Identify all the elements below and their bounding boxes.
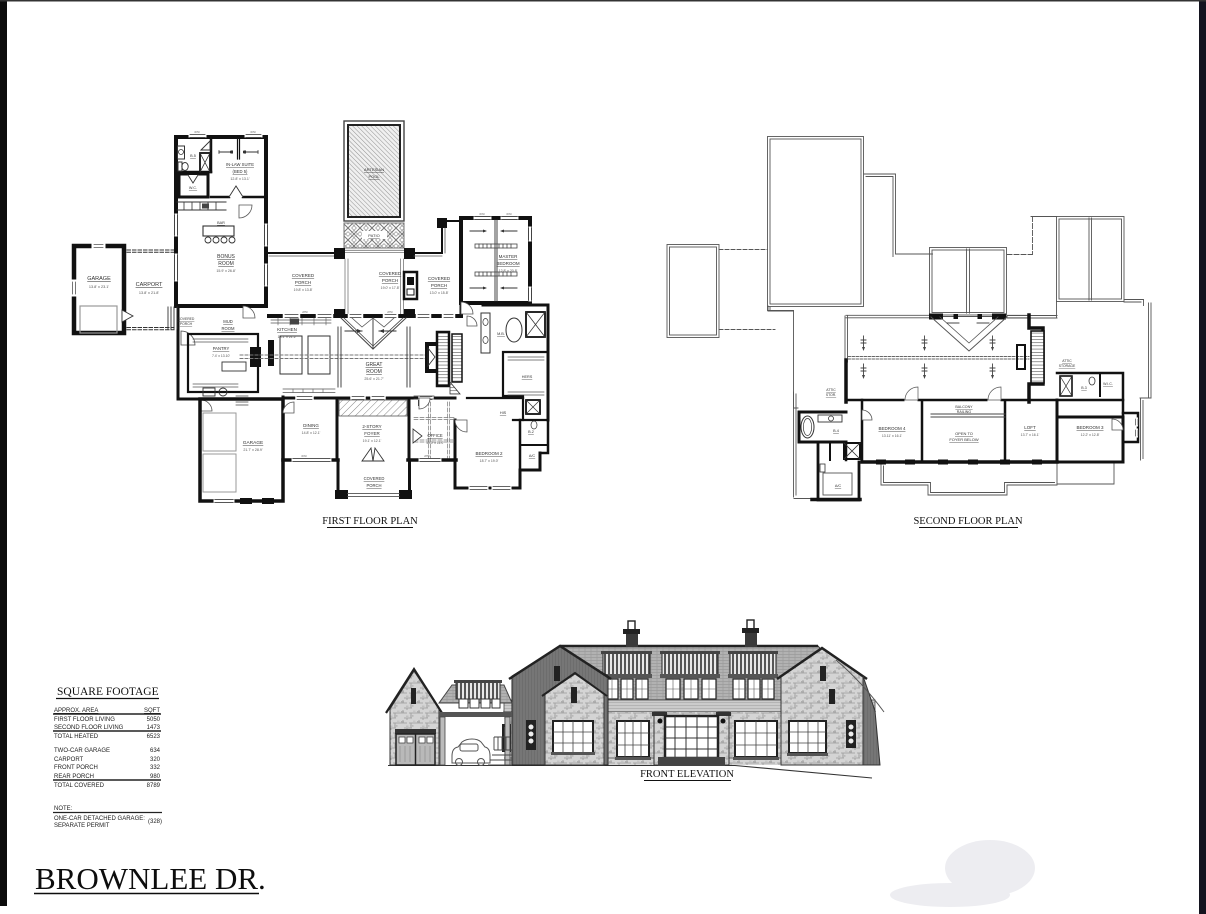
- svg-text:ARTESIAN: ARTESIAN: [364, 167, 384, 172]
- svg-text:980: 980: [150, 774, 161, 780]
- svg-text:ATTIC: ATTIC: [1062, 359, 1072, 363]
- svg-text:8789: 8789: [147, 783, 161, 789]
- svg-text:COVERED: COVERED: [364, 476, 385, 481]
- svg-text:ROOM: ROOM: [221, 326, 235, 331]
- svg-text:PORCH: PORCH: [431, 283, 447, 288]
- svg-text:18.7' x 19.0': 18.7' x 19.0': [480, 459, 499, 463]
- svg-text:2850: 2850: [302, 310, 308, 314]
- svg-text:1473: 1473: [147, 725, 161, 731]
- svg-text:MASTER: MASTER: [499, 254, 519, 259]
- svg-text:13.0' x 15.8': 13.0' x 15.8': [430, 291, 449, 295]
- svg-text:W.C.: W.C.: [189, 186, 197, 190]
- svg-text:OFFICE: OFFICE: [427, 433, 443, 438]
- svg-text:21.7' x 28.9': 21.7' x 28.9': [243, 448, 262, 452]
- svg-text:PANTRY: PANTRY: [213, 346, 230, 351]
- svg-text:6523: 6523: [147, 734, 161, 740]
- svg-text:13.8' x 23.1': 13.8' x 23.1': [89, 285, 110, 289]
- svg-text:2-STORY: 2-STORY: [362, 424, 381, 429]
- svg-text:APPROX. AREA: APPROX. AREA: [54, 708, 98, 714]
- svg-text:NOTE:: NOTE:: [54, 806, 73, 812]
- svg-text:STOR.: STOR.: [826, 393, 836, 397]
- svg-text:BEDROOM 4: BEDROOM 4: [878, 426, 906, 431]
- svg-text:332: 332: [150, 765, 161, 771]
- svg-text:BALCONY: BALCONY: [955, 405, 973, 409]
- svg-text:5050: 5050: [147, 717, 161, 723]
- svg-text:19.0' x 17.8': 19.0' x 17.8': [381, 286, 400, 290]
- svg-text:KITCHEN: KITCHEN: [277, 327, 297, 332]
- svg-text:12.8' x 20.8': 12.8' x 20.8': [499, 269, 518, 273]
- svg-text:B.3: B.3: [1081, 386, 1086, 390]
- svg-text:(BED 5): (BED 5): [233, 169, 248, 174]
- svg-text:POOL: POOL: [368, 174, 380, 179]
- svg-text:10.0' x 11.0': 10.0' x 11.0': [426, 441, 444, 445]
- svg-text:12.2' x 12.8': 12.2' x 12.8': [1081, 433, 1100, 437]
- svg-text:FOYER BELOW: FOYER BELOW: [949, 437, 979, 442]
- svg-text:GARAGE: GARAGE: [87, 276, 111, 282]
- svg-text:3050: 3050: [194, 130, 200, 134]
- svg-text:19.1' x 12.1': 19.1' x 12.1': [363, 439, 382, 443]
- svg-text:13.11' x 16.1': 13.11' x 16.1': [882, 434, 903, 438]
- svg-text:SECOND FLOOR LIVING: SECOND FLOOR LIVING: [54, 725, 124, 731]
- svg-text:TWO-CAR GARAGE: TWO-CAR GARAGE: [54, 748, 110, 754]
- svg-text:320: 320: [150, 757, 161, 763]
- svg-text:634: 634: [150, 748, 161, 754]
- svg-text:IN-LAW SUITE: IN-LAW SUITE: [226, 162, 254, 167]
- svg-text:PORCH: PORCH: [180, 322, 193, 326]
- svg-text:REAR PORCH: REAR PORCH: [54, 774, 94, 780]
- svg-text:COVERED: COVERED: [428, 276, 451, 281]
- svg-text:FIRST FLOOR LIVING: FIRST FLOOR LIVING: [54, 717, 115, 723]
- svg-text:BAR: BAR: [217, 221, 225, 225]
- svg-text:25.6' x 21.7': 25.6' x 21.7': [364, 377, 383, 381]
- svg-text:A/C: A/C: [835, 484, 842, 488]
- svg-text:COVERED: COVERED: [292, 273, 315, 278]
- svg-text:SQFT: SQFT: [144, 708, 160, 714]
- svg-text:CARPORT: CARPORT: [54, 757, 84, 763]
- svg-text:COVERED: COVERED: [379, 271, 402, 276]
- svg-text:PORCH: PORCH: [382, 278, 398, 283]
- svg-text:FRONT ELEVATION: FRONT ELEVATION: [640, 769, 734, 780]
- svg-text:(328): (328): [148, 819, 162, 825]
- svg-text:ROOM: ROOM: [366, 369, 382, 375]
- svg-text:SECOND FLOOR PLAN: SECOND FLOOR PLAN: [913, 516, 1023, 527]
- svg-text:B.4: B.4: [833, 429, 839, 433]
- svg-text:OPEN TO: OPEN TO: [955, 431, 973, 436]
- svg-text:BONUS: BONUS: [217, 254, 235, 260]
- svg-text:LOFT: LOFT: [1024, 425, 1036, 430]
- svg-text:CARPORT: CARPORT: [136, 282, 163, 288]
- svg-text:GREAT: GREAT: [366, 362, 383, 368]
- svg-text:HIS: HIS: [500, 411, 507, 415]
- svg-text:PORCH: PORCH: [295, 280, 311, 285]
- svg-text:BEDROOM 2: BEDROOM 2: [475, 451, 503, 456]
- svg-text:SEPARATE PERMIT: SEPARATE PERMIT: [54, 823, 110, 829]
- svg-text:3060: 3060: [506, 212, 512, 216]
- svg-text:12.8' x 13.1': 12.8' x 13.1': [230, 177, 249, 181]
- svg-text:FRONT PORCH: FRONT PORCH: [54, 765, 98, 771]
- svg-text:TOTAL COVERED: TOTAL COVERED: [54, 783, 105, 789]
- svg-text:FOYER: FOYER: [364, 431, 380, 436]
- svg-text:3060: 3060: [479, 212, 485, 216]
- svg-text:3050: 3050: [250, 130, 256, 134]
- svg-text:2850: 2850: [387, 310, 393, 314]
- svg-text:PATIO: PATIO: [368, 233, 379, 238]
- svg-text:FIRST FLOOR PLAN: FIRST FLOOR PLAN: [322, 516, 418, 527]
- svg-text:M.B.: M.B.: [497, 332, 505, 336]
- svg-text:SQUARE FOOTAGE: SQUARE FOOTAGE: [57, 686, 159, 698]
- svg-text:ONE-CAR DETACHED GARAGE:: ONE-CAR DETACHED GARAGE:: [54, 816, 145, 822]
- svg-text:B.2: B.2: [528, 430, 534, 434]
- svg-text:PORCH: PORCH: [366, 483, 381, 488]
- svg-text:ROOM: ROOM: [218, 261, 234, 267]
- svg-text:ATTIC: ATTIC: [826, 388, 836, 392]
- svg-text:15.9' x 26.8': 15.9' x 26.8': [216, 269, 235, 273]
- svg-text:14.8' x 12.1': 14.8' x 12.1': [302, 431, 321, 435]
- svg-text:TOTAL HEATED: TOTAL HEATED: [54, 734, 99, 740]
- svg-text:2850: 2850: [424, 454, 430, 458]
- svg-text:GARAGE: GARAGE: [243, 440, 264, 446]
- svg-text:MUD: MUD: [223, 319, 233, 324]
- svg-text:13.8' x 21.8': 13.8' x 21.8': [139, 291, 160, 295]
- svg-text:RAILING: RAILING: [957, 410, 972, 414]
- svg-text:B.5: B.5: [190, 154, 196, 158]
- svg-text:13.7' x 16.1': 13.7' x 16.1': [1021, 433, 1040, 437]
- svg-text:DINING: DINING: [303, 423, 319, 428]
- svg-text:3060: 3060: [301, 454, 307, 458]
- svg-text:7.4' x 13.10': 7.4' x 13.10': [212, 354, 230, 358]
- svg-text:BEDROOM 3: BEDROOM 3: [1076, 425, 1104, 430]
- svg-text:COVERED: COVERED: [178, 317, 195, 321]
- svg-text:W.I.C.: W.I.C.: [1103, 382, 1113, 386]
- svg-text:19.8' x 13.8': 19.8' x 13.8': [294, 288, 313, 292]
- svg-text:STORAGE: STORAGE: [1059, 364, 1076, 368]
- svg-text:HERS: HERS: [522, 375, 533, 379]
- svg-text:BROWNLEE DR.: BROWNLEE DR.: [35, 861, 266, 896]
- svg-text:A/C: A/C: [529, 454, 536, 458]
- svg-text:BEDROOM: BEDROOM: [496, 261, 520, 266]
